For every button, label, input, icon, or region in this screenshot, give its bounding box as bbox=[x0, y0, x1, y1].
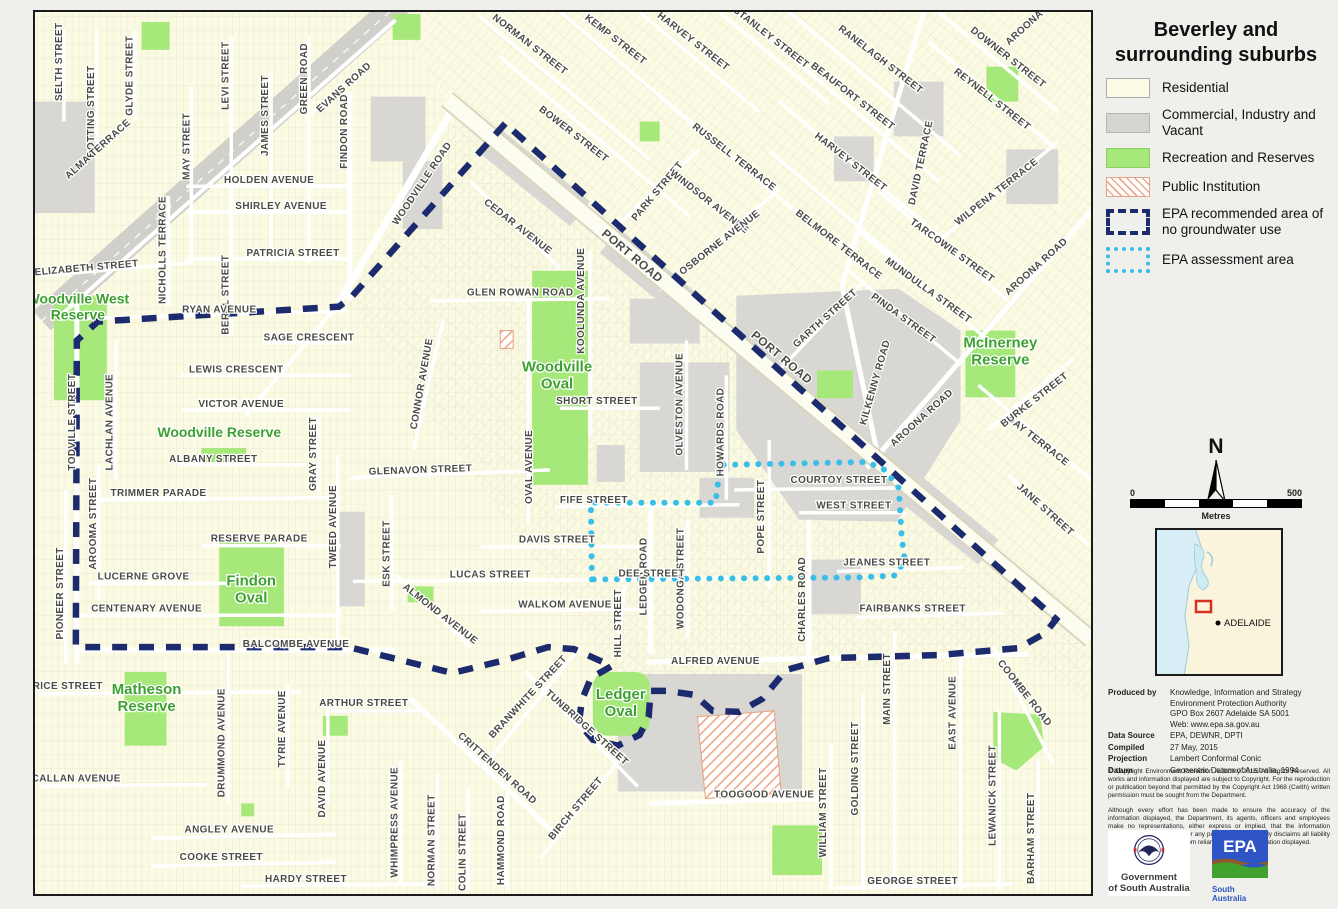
svg-text:PIONEER STREET: PIONEER STREET bbox=[55, 547, 66, 639]
svg-text:FIFE STREET: FIFE STREET bbox=[560, 495, 628, 506]
svg-text:NICHOLLS TERRACE: NICHOLLS TERRACE bbox=[158, 196, 169, 304]
svg-text:WHIMPRESS AVENUE: WHIMPRESS AVENUE bbox=[390, 767, 401, 878]
legend-swatch-recreation bbox=[1106, 148, 1150, 168]
svg-text:HOLDEN AVENUE: HOLDEN AVENUE bbox=[224, 175, 314, 186]
svg-text:Woodville West: Woodville West bbox=[35, 291, 129, 307]
svg-text:OLVESTON AVENUE: OLVESTON AVENUE bbox=[675, 353, 686, 456]
svg-text:HILL STREET: HILL STREET bbox=[613, 589, 624, 657]
svg-text:Reserve: Reserve bbox=[971, 351, 1029, 368]
svg-text:TODVILLE STREET: TODVILLE STREET bbox=[67, 374, 78, 471]
svg-text:KOOLUNDA AVENUE: KOOLUNDA AVENUE bbox=[576, 248, 587, 354]
legend-label: EPA assessment area bbox=[1162, 252, 1294, 268]
svg-text:DEE STREET: DEE STREET bbox=[618, 568, 684, 579]
svg-text:EAST AVENUE: EAST AVENUE bbox=[948, 676, 959, 750]
svg-text:COOKE STREET: COOKE STREET bbox=[180, 852, 263, 863]
svg-text:EPA: EPA bbox=[1223, 837, 1257, 856]
page: { "title": {"line1": "Beverley and", "li… bbox=[0, 0, 1338, 909]
svg-text:MAIN STREET: MAIN STREET bbox=[882, 653, 893, 725]
svg-text:RESERVE PARADE: RESERVE PARADE bbox=[211, 534, 308, 545]
svg-text:ALBANY STREET: ALBANY STREET bbox=[169, 454, 257, 465]
legend-item-epa-recommended: EPA recommended area of no groundwater u… bbox=[1106, 206, 1332, 238]
svg-text:SHIRLEY AVENUE: SHIRLEY AVENUE bbox=[235, 201, 327, 212]
legend-swatch-commercial bbox=[1106, 113, 1150, 133]
map-panel: SELTH STREETBOTTING STREETGLYDE STREETMA… bbox=[33, 10, 1093, 896]
legend-label: Commercial, Industry and Vacant bbox=[1162, 107, 1332, 139]
svg-text:TYRIE AVENUE: TYRIE AVENUE bbox=[277, 690, 288, 767]
svg-text:ARTHUR STREET: ARTHUR STREET bbox=[319, 698, 408, 709]
legend: ResidentialCommercial, Industry and Vaca… bbox=[1106, 78, 1332, 282]
svg-text:HOWARDS ROAD: HOWARDS ROAD bbox=[715, 388, 726, 477]
svg-text:ANGLEY AVENUE: ANGLEY AVENUE bbox=[185, 824, 275, 835]
svg-text:POPE STREET: POPE STREET bbox=[756, 480, 767, 554]
svg-text:GRAY STREET: GRAY STREET bbox=[308, 417, 319, 491]
legend-label: Residential bbox=[1162, 80, 1229, 96]
svg-text:Matheson: Matheson bbox=[112, 681, 182, 698]
svg-text:TRIMMER PARADE: TRIMMER PARADE bbox=[111, 488, 207, 499]
svg-text:SHORT STREET: SHORT STREET bbox=[556, 396, 638, 407]
svg-text:JEANES STREET: JEANES STREET bbox=[843, 557, 930, 568]
svg-text:GLYDE STREET: GLYDE STREET bbox=[125, 36, 136, 116]
svg-text:ESK STREET: ESK STREET bbox=[382, 520, 393, 586]
metadata-row: Data SourceEPA, DEWNR, DPTI bbox=[1108, 731, 1332, 742]
metadata-row: ProjectionLambert Conformal Conic bbox=[1108, 754, 1332, 765]
legend-label: Public Institution bbox=[1162, 179, 1260, 195]
legend-item-commercial: Commercial, Industry and Vacant bbox=[1106, 107, 1332, 139]
svg-text:COURTOY STREET: COURTOY STREET bbox=[790, 475, 887, 486]
svg-text:Oval: Oval bbox=[235, 589, 267, 606]
legend-item-residential: Residential bbox=[1106, 78, 1332, 98]
svg-text:Reserve: Reserve bbox=[51, 307, 106, 323]
epa-logo: EPA South Australia bbox=[1212, 830, 1268, 903]
map-canvas: SELTH STREETBOTTING STREETGLYDE STREETMA… bbox=[35, 12, 1091, 894]
svg-text:CENTENARY AVENUE: CENTENARY AVENUE bbox=[91, 603, 202, 614]
legend-item-epa-assessment: EPA assessment area bbox=[1106, 247, 1332, 273]
svg-text:VICTOR AVENUE: VICTOR AVENUE bbox=[198, 399, 284, 410]
svg-text:GREEN ROAD: GREEN ROAD bbox=[299, 43, 310, 114]
legend-swatch-residential bbox=[1106, 78, 1150, 98]
legend-swatch-public bbox=[1106, 177, 1150, 197]
svg-text:LUCERNE GROVE: LUCERNE GROVE bbox=[98, 571, 190, 582]
svg-text:SAGE CRESCENT: SAGE CRESCENT bbox=[264, 333, 355, 344]
svg-text:JAMES STREET: JAMES STREET bbox=[260, 75, 271, 156]
side-panel: Beverley and surrounding suburbs Residen… bbox=[1100, 10, 1332, 896]
metadata-row: Produced byKnowledge, Information and St… bbox=[1108, 688, 1332, 730]
svg-text:DRUMMOND AVENUE: DRUMMOND AVENUE bbox=[216, 688, 227, 797]
north-label: N bbox=[1100, 435, 1332, 459]
gov-logo-line2: of South Australia bbox=[1108, 884, 1190, 895]
svg-text:Findon: Findon bbox=[226, 572, 276, 589]
svg-text:DAVID AVENUE: DAVID AVENUE bbox=[317, 740, 328, 818]
svg-text:AROOMA STREET: AROOMA STREET bbox=[88, 478, 99, 570]
svg-text:Woodville Reserve: Woodville Reserve bbox=[157, 424, 281, 440]
svg-text:HAMMOND ROAD: HAMMOND ROAD bbox=[496, 795, 507, 885]
svg-text:COLIN STREET: COLIN STREET bbox=[457, 813, 468, 891]
svg-text:LEVI STREET: LEVI STREET bbox=[220, 42, 231, 110]
scale-bar-graphic bbox=[1130, 499, 1302, 508]
legend-label: Recreation and Reserves bbox=[1162, 150, 1314, 166]
svg-text:MAY STREET: MAY STREET bbox=[181, 113, 192, 180]
svg-text:NORMAN STREET: NORMAN STREET bbox=[426, 794, 437, 886]
svg-text:LEWANICK STREET: LEWANICK STREET bbox=[987, 745, 998, 846]
svg-text:BERYL STREET: BERYL STREET bbox=[220, 255, 231, 335]
svg-text:BRICE STREET: BRICE STREET bbox=[35, 681, 103, 692]
svg-text:TOOGOOD AVENUE: TOOGOOD AVENUE bbox=[714, 789, 814, 800]
piping-shrike-icon bbox=[1131, 832, 1167, 868]
legend-item-recreation: Recreation and Reserves bbox=[1106, 148, 1332, 168]
epa-logo-region: South Australia bbox=[1212, 885, 1268, 903]
inset-city-label: ADELAIDE bbox=[1224, 618, 1271, 629]
svg-text:WEST STREET: WEST STREET bbox=[816, 501, 891, 512]
svg-text:FINDON ROAD: FINDON ROAD bbox=[339, 94, 350, 168]
svg-text:BARHAM STREET: BARHAM STREET bbox=[1026, 793, 1037, 884]
scale-end: 500 bbox=[1287, 488, 1302, 498]
svg-text:Woodville: Woodville bbox=[522, 358, 592, 375]
svg-text:RYAN AVENUE: RYAN AVENUE bbox=[182, 305, 256, 316]
svg-text:MCALLAN AVENUE: MCALLAN AVENUE bbox=[35, 774, 121, 785]
svg-text:DAVIS STREET: DAVIS STREET bbox=[519, 535, 595, 546]
legend-swatch-epa-assessment bbox=[1106, 247, 1150, 273]
legend-item-public: Public Institution bbox=[1106, 177, 1332, 197]
svg-text:HARDY STREET: HARDY STREET bbox=[265, 874, 347, 885]
scale-start: 0 bbox=[1130, 488, 1135, 498]
svg-text:SELTH STREET: SELTH STREET bbox=[54, 22, 65, 101]
svg-text:Oval: Oval bbox=[541, 375, 573, 392]
svg-text:LEWIS CRESCENT: LEWIS CRESCENT bbox=[189, 364, 284, 375]
svg-text:Ledger: Ledger bbox=[596, 686, 646, 703]
metadata-row: Compiled27 May, 2015 bbox=[1108, 743, 1332, 754]
svg-text:PATRICIA STREET: PATRICIA STREET bbox=[246, 248, 339, 259]
svg-text:OVAL AVENUE: OVAL AVENUE bbox=[524, 430, 535, 504]
legend-label: EPA recommended area of no groundwater u… bbox=[1162, 206, 1332, 238]
map-title: Beverley and surrounding suburbs bbox=[1100, 18, 1332, 68]
svg-text:TWEED AVENUE: TWEED AVENUE bbox=[328, 485, 339, 569]
scale-bar: 0 500 Metres bbox=[1130, 488, 1302, 521]
svg-text:WILLIAM STREET: WILLIAM STREET bbox=[818, 767, 829, 857]
gov-logo-line1: Government bbox=[1108, 873, 1190, 884]
metadata-block: Produced byKnowledge, Information and St… bbox=[1108, 688, 1332, 777]
inset-locator-map: ADELAIDE bbox=[1155, 528, 1283, 681]
logos: Government of South Australia EPA South … bbox=[1108, 830, 1332, 903]
svg-text:FAIRBANKS STREET: FAIRBANKS STREET bbox=[859, 603, 965, 614]
svg-text:GLEN ROWAN ROAD: GLEN ROWAN ROAD bbox=[467, 288, 573, 299]
scale-unit: Metres bbox=[1130, 511, 1302, 521]
svg-text:Oval: Oval bbox=[605, 703, 637, 720]
svg-text:CHARLES ROAD: CHARLES ROAD bbox=[797, 557, 808, 642]
svg-text:LUCAS STREET: LUCAS STREET bbox=[450, 569, 531, 580]
legend-swatch-epa-recommended bbox=[1106, 209, 1150, 235]
svg-text:WALKOM AVENUE: WALKOM AVENUE bbox=[518, 599, 612, 610]
svg-text:Reserve: Reserve bbox=[118, 698, 176, 715]
government-sa-logo: Government of South Australia bbox=[1108, 830, 1190, 896]
svg-text:GOLDING STREET: GOLDING STREET bbox=[850, 722, 861, 816]
svg-text:BALCOMBE AVENUE: BALCOMBE AVENUE bbox=[243, 639, 350, 650]
svg-text:McInerney: McInerney bbox=[963, 334, 1038, 351]
svg-text:LACHLAN AVENUE: LACHLAN AVENUE bbox=[105, 374, 116, 471]
svg-text:ALFRED AVENUE: ALFRED AVENUE bbox=[671, 656, 760, 667]
epa-logo-icon: EPA bbox=[1212, 830, 1268, 878]
inset-city-dot bbox=[1216, 621, 1221, 626]
svg-text:GEORGE STREET: GEORGE STREET bbox=[867, 876, 958, 887]
